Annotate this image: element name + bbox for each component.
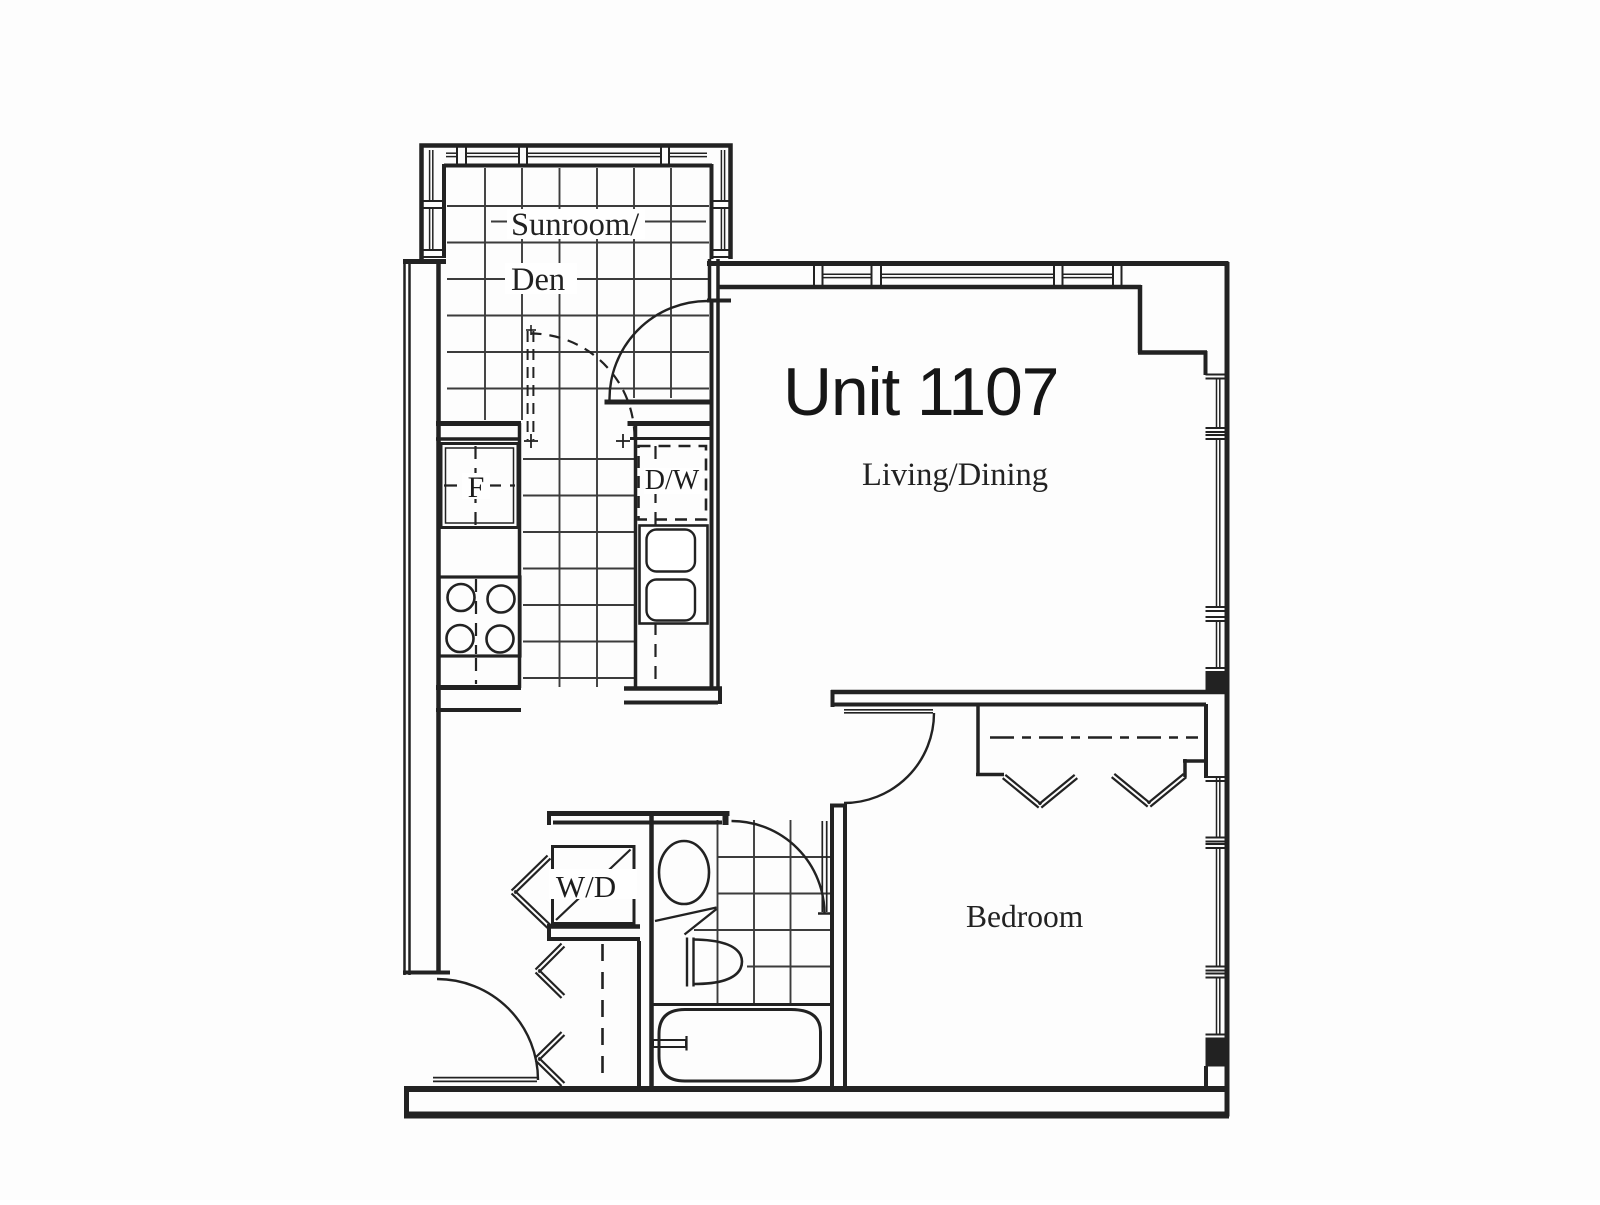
svg-text:W/D: W/D [556,869,616,904]
svg-text:Den: Den [511,262,565,298]
svg-text:Bedroom: Bedroom [966,899,1084,934]
svg-text:Unit 1107: Unit 1107 [783,354,1058,430]
svg-text:D/W: D/W [645,465,700,496]
svg-text:F: F [468,471,485,504]
svg-text:Sunroom/: Sunroom/ [511,207,640,243]
svg-text:Living/Dining: Living/Dining [862,457,1048,493]
